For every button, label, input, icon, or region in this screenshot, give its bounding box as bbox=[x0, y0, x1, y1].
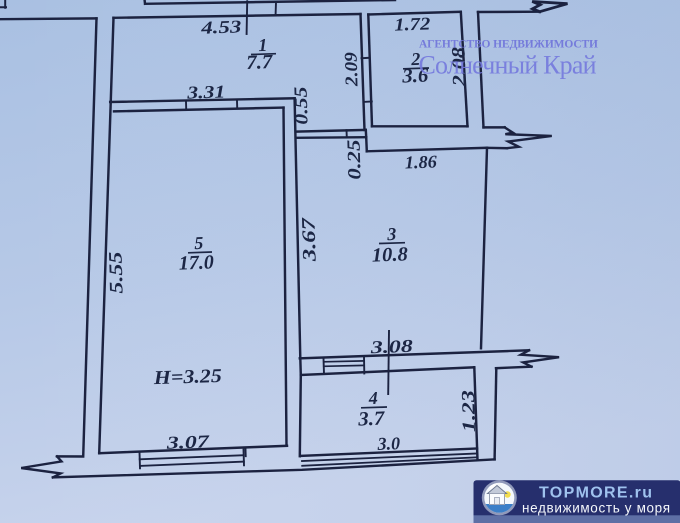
svg-text:0.55: 0.55 bbox=[292, 86, 313, 125]
svg-text:3: 3 bbox=[386, 224, 397, 244]
svg-text:4: 4 bbox=[367, 388, 378, 408]
svg-text:5: 5 bbox=[194, 233, 204, 253]
svg-text:1.72: 1.72 bbox=[394, 13, 431, 34]
svg-text:2.09: 2.09 bbox=[341, 52, 362, 88]
svg-text:3.31: 3.31 bbox=[186, 81, 226, 102]
svg-text:3.67: 3.67 bbox=[298, 216, 320, 263]
svg-text:недвижимость у моря: недвижимость у моря bbox=[522, 501, 670, 516]
svg-text:H=3.25: H=3.25 bbox=[152, 366, 222, 389]
svg-text:5.55: 5.55 bbox=[105, 251, 127, 294]
svg-text:0.25: 0.25 bbox=[344, 139, 365, 180]
svg-text:4.53: 4.53 bbox=[200, 16, 242, 37]
svg-text:1.86: 1.86 bbox=[404, 151, 437, 172]
svg-text:Солнечный Край: Солнечный Край bbox=[419, 51, 597, 80]
svg-text:17.0: 17.0 bbox=[178, 251, 214, 274]
svg-text:3.07: 3.07 bbox=[165, 431, 210, 453]
svg-text:3.7: 3.7 bbox=[357, 408, 386, 431]
svg-text:3.0: 3.0 bbox=[376, 433, 400, 454]
svg-text:TOPMORE.ru: TOPMORE.ru bbox=[539, 485, 652, 502]
svg-text:1.23: 1.23 bbox=[459, 390, 480, 433]
svg-text:10.8: 10.8 bbox=[371, 243, 408, 266]
svg-text:3.08: 3.08 bbox=[369, 336, 413, 358]
svg-text:АГЕНТСТВО НЕДВИЖИМОСТИ: АГЕНТСТВО НЕДВИЖИМОСТИ bbox=[419, 39, 598, 51]
svg-text:7.7: 7.7 bbox=[246, 51, 274, 74]
